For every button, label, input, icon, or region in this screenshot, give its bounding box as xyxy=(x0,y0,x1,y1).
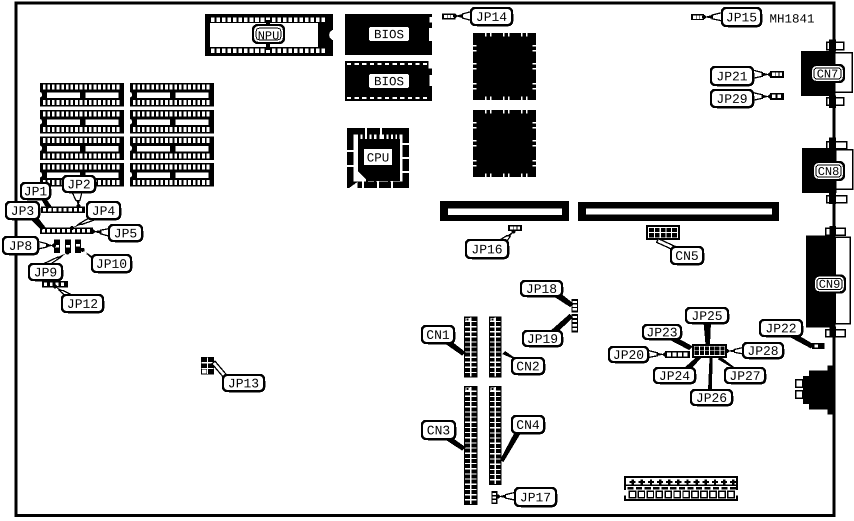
svg-text:JP21: JP21 xyxy=(716,69,747,84)
svg-text:CPU: CPU xyxy=(367,151,390,165)
svg-text:JP20: JP20 xyxy=(613,348,644,363)
svg-text:BIOS: BIOS xyxy=(374,75,404,89)
svg-text:JP13: JP13 xyxy=(228,376,259,391)
svg-text:JP27: JP27 xyxy=(729,369,760,384)
svg-text:JP23: JP23 xyxy=(646,325,677,340)
svg-text:CN7: CN7 xyxy=(817,67,839,81)
svg-text:JP18: JP18 xyxy=(526,282,557,297)
svg-text:JP25: JP25 xyxy=(691,309,722,324)
svg-text:JP9: JP9 xyxy=(34,265,57,280)
svg-text:JP2: JP2 xyxy=(67,177,90,192)
svg-text:JP1: JP1 xyxy=(24,184,48,199)
svg-text:NPU: NPU xyxy=(258,29,280,43)
svg-text:JP24: JP24 xyxy=(659,369,690,384)
svg-text:CN3: CN3 xyxy=(427,423,450,438)
svg-text:CN9: CN9 xyxy=(819,278,841,292)
svg-text:JP22: JP22 xyxy=(765,321,796,336)
svg-text:JP17: JP17 xyxy=(520,490,551,505)
svg-text:CN8: CN8 xyxy=(818,165,840,179)
svg-text:CN4: CN4 xyxy=(516,418,540,433)
svg-text:CN1: CN1 xyxy=(426,328,450,343)
svg-text:JP28: JP28 xyxy=(747,344,778,359)
svg-text:MH1841: MH1841 xyxy=(769,12,814,26)
svg-text:CN2: CN2 xyxy=(516,359,539,374)
svg-text:BIOS: BIOS xyxy=(374,28,404,42)
svg-text:JP5: JP5 xyxy=(114,226,137,241)
svg-text:CN5: CN5 xyxy=(675,249,698,264)
svg-text:JP3: JP3 xyxy=(11,204,34,219)
svg-text:JP10: JP10 xyxy=(96,257,127,272)
svg-text:JP26: JP26 xyxy=(696,391,727,406)
svg-text:JP16: JP16 xyxy=(471,242,502,257)
svg-text:JP12: JP12 xyxy=(67,297,98,312)
svg-text:JP14: JP14 xyxy=(476,10,507,25)
svg-text:JP8: JP8 xyxy=(9,239,32,254)
svg-text:JP4: JP4 xyxy=(92,204,116,219)
svg-text:JP15: JP15 xyxy=(726,10,757,25)
svg-text:JP29: JP29 xyxy=(716,92,747,107)
svg-text:JP19: JP19 xyxy=(527,332,558,347)
